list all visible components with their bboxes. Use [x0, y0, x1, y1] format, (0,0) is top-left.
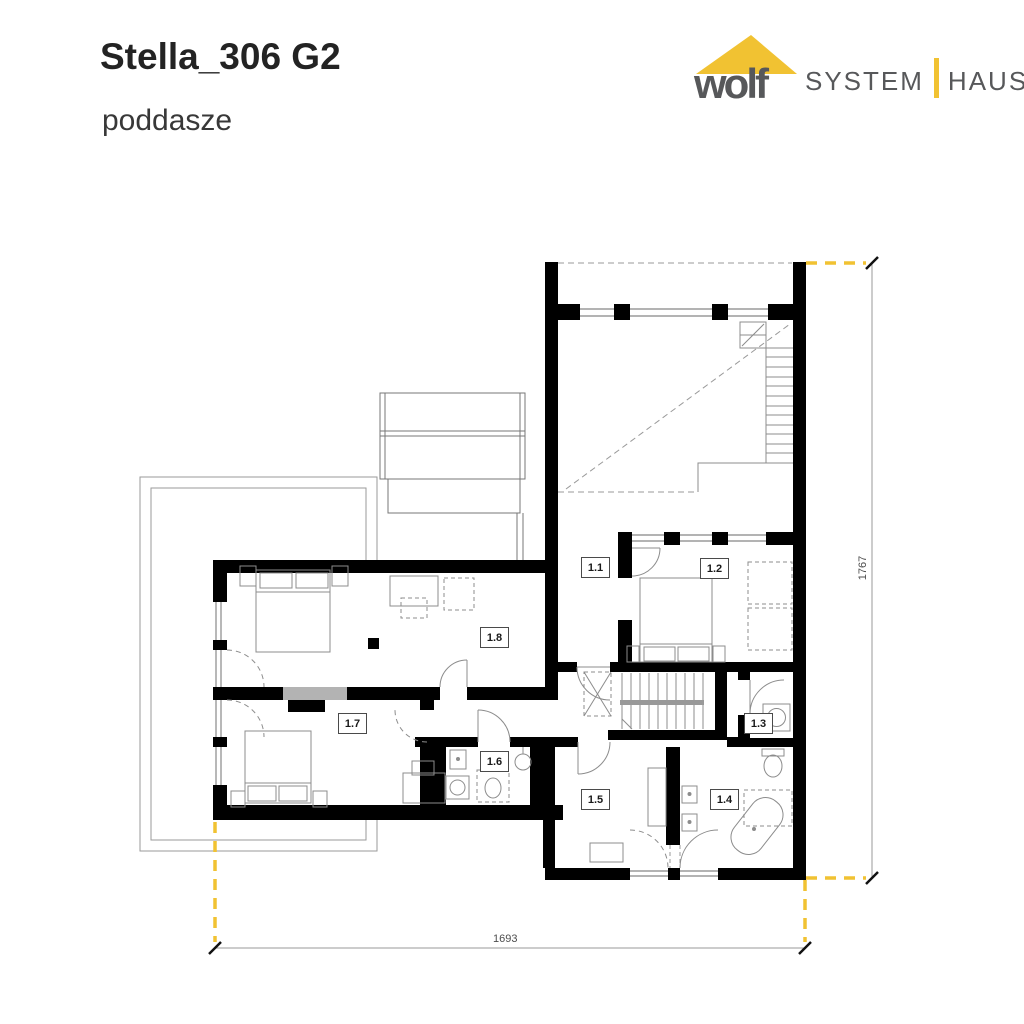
room-label-1-1: 1.1: [581, 557, 610, 578]
room-label-1-4: 1.4: [710, 789, 739, 810]
knee-wall: [283, 687, 347, 700]
dimension-width-label: 1693: [490, 933, 520, 945]
room-label-1-7: 1.7: [338, 713, 367, 734]
room-label-1-3: 1.3: [744, 713, 773, 734]
room-label-1-2: 1.2: [700, 558, 729, 579]
dimension-height-label: 1767: [857, 553, 869, 583]
floor-plan-drawing: [0, 0, 1024, 1024]
floor-plan-page: Stella_306 G2 poddasze wolf SYSTEM HAUS: [0, 0, 1024, 1024]
room-label-1-8: 1.8: [480, 627, 509, 648]
roof-window-grid: [380, 393, 525, 560]
room-label-1-6: 1.6: [480, 751, 509, 772]
room-label-1-5: 1.5: [581, 789, 610, 810]
